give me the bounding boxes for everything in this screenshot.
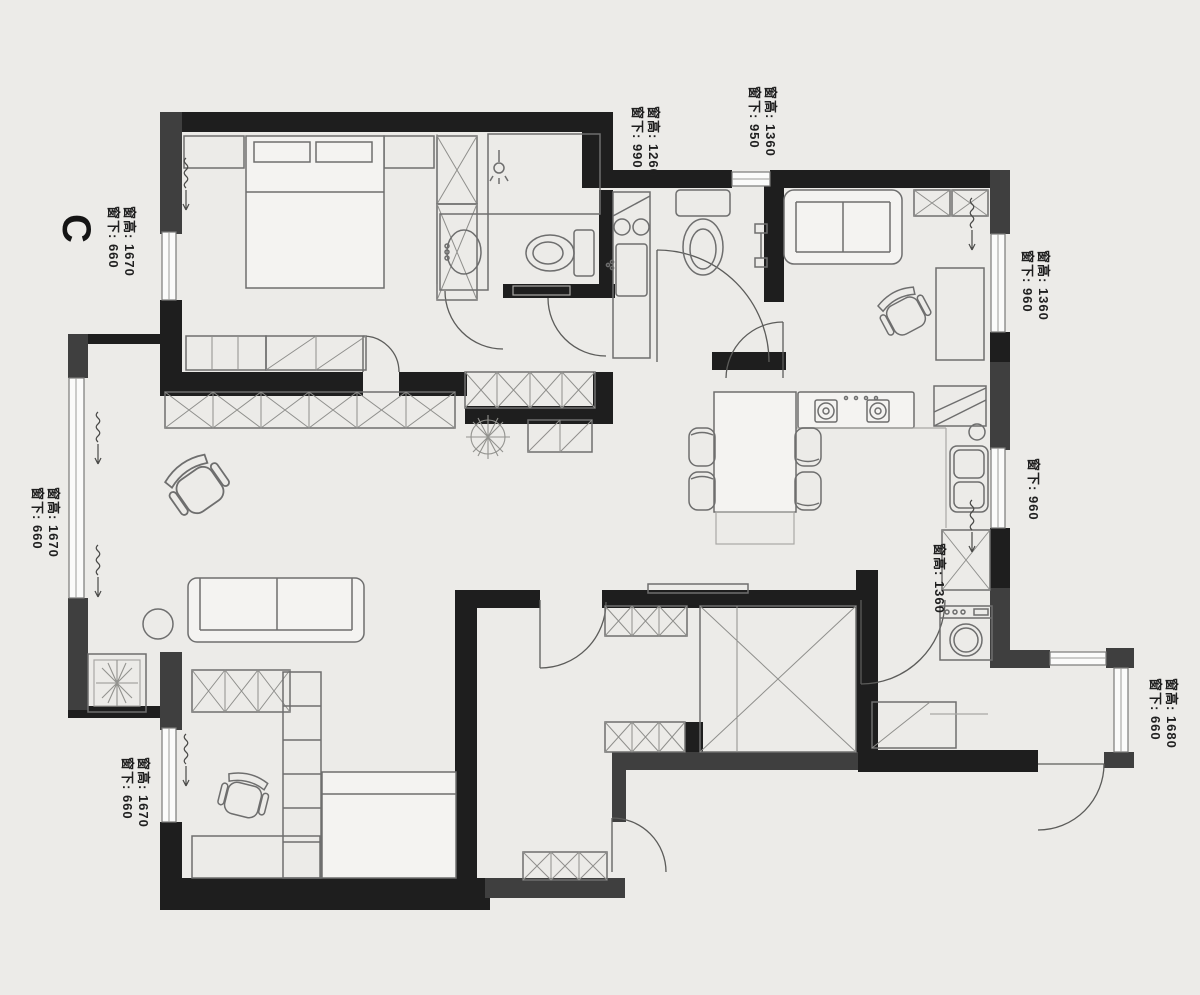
plan-letter: C [56,214,96,243]
study-room [784,190,988,360]
annotation-master-west-window: 窗高: 1670 窗下: 660 [105,206,137,277]
annotation-living-west-window: 窗高: 1670 窗下: 660 [29,487,61,558]
dining-chair-icon [795,428,821,466]
annotation-hall-north-window: 窗高: 1360 窗下: 950 [746,86,778,157]
round-table-icon [143,609,173,639]
nightstand-icon [384,136,434,168]
storage-cabinet-icon [914,190,988,216]
dining-chair-icon [689,472,715,510]
sofa-icon [784,190,902,264]
dining-chair-icon [795,472,821,510]
kitchen-counter-icon [613,192,650,358]
door-corridor-south [612,818,666,872]
master-bedroom [184,134,437,370]
window-study-east [991,234,1005,332]
annotation-laundry-window: 窗高: 1360 [931,543,947,614]
window-kitchen-east [991,448,1005,528]
window-hall-north [732,172,770,186]
door-entry [1038,764,1104,830]
storage-cabinet-icon [605,722,685,752]
annotation-kitchen-east-window: 窗下: 960 [1025,458,1041,521]
double-bed-icon [246,136,384,288]
stove-icon [798,392,914,428]
windows [69,172,1128,822]
door-bathroom2 [657,250,769,362]
bench-icon [186,336,266,370]
bathroom-sink-icon [440,214,488,290]
toilet-icon [676,190,730,275]
nightstand-icon [184,136,244,168]
armchair-icon [158,447,234,522]
shoe-cabinet-icon [465,372,595,408]
stove-burner-icon [633,219,649,235]
kitchen-strip [606,192,650,358]
annotation-bedroom-west-window: 窗高: 1670 窗下: 660 [119,757,151,828]
kitchen [795,386,992,660]
fridge-icon [934,386,986,440]
toilet-icon [526,230,594,276]
counter-edge [795,428,946,528]
storage-cabinet-icon [165,392,455,428]
bookshelf-icon [283,672,321,878]
guest-bathroom [676,190,730,275]
sliding-wardrobe-icon [266,336,366,370]
window-bedroom-west [162,728,176,822]
floor-plan-canvas [0,0,1200,995]
washing-machine-icon [940,606,992,660]
storage-cabinet-icon [942,530,990,590]
annotation-bath-north-window: 窗高: 1260 窗下: 990 [629,106,661,177]
stove-burner-icon [614,219,630,235]
planter-icon [88,654,146,712]
dining-table-icon [714,392,796,512]
entry-area [872,702,988,748]
living-room [88,372,748,712]
annotation-balcony-east-window: 窗高: 1680 窗下: 660 [1147,678,1179,749]
storage-cabinet-icon [523,852,607,880]
walk-in-closet-icon [700,606,856,752]
bench-icon [192,670,290,712]
table-extension [716,512,794,544]
bed-icon [322,772,456,878]
window-master-west [162,232,176,300]
annotation-study-east-window: 窗高: 1360 窗下: 960 [1019,250,1051,321]
window-living-west [69,378,84,598]
storage-cabinet-icon [437,136,477,300]
office-chair-icon [872,281,934,341]
console-cabinet-icon [528,420,592,452]
window-balcony-east [1114,668,1128,752]
window-balcony-north [1050,652,1106,665]
floor-plan: C 窗高: 1260 窗下: 990 窗高: 1360 窗下: 950 窗高: … [0,0,1200,995]
kitchen-sink-icon [950,446,988,512]
bench-icon [872,702,988,748]
desk-icon [936,268,984,360]
office-chair-icon [216,768,273,821]
sofa-icon [188,578,364,642]
ensuite-bathroom [437,134,600,300]
door-closet-corridor [540,600,606,668]
counter-fold [613,196,650,216]
dining-chair-icon [689,428,715,466]
bedroom3 [192,670,456,878]
storage-cabinet-icon [605,606,687,636]
door-master-bedroom [363,336,399,372]
door-vestibule [548,298,606,356]
